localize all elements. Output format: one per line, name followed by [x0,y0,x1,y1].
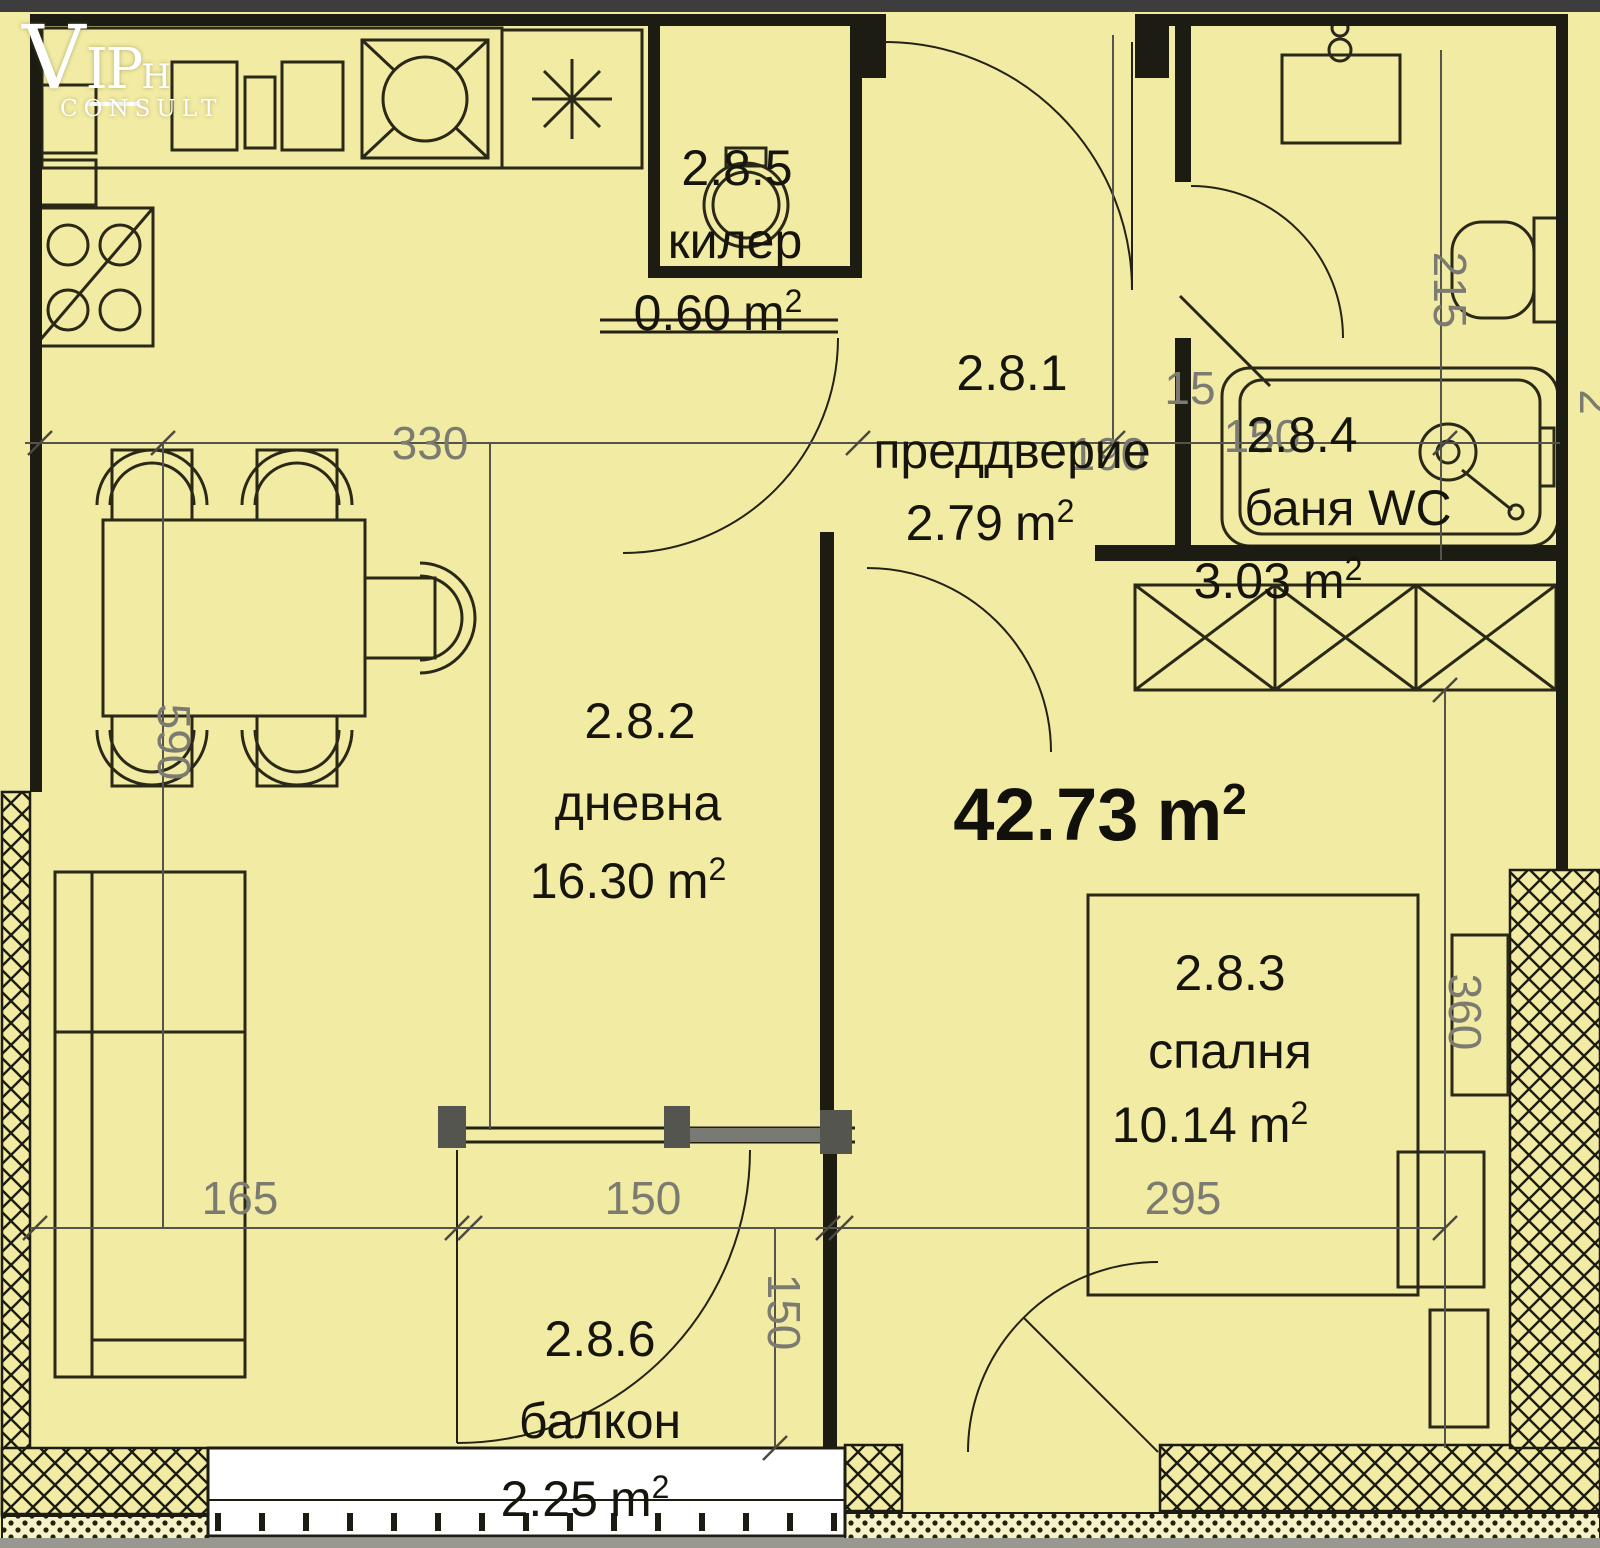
logo-h: H [141,57,171,97]
closet-id: 2.8.5 [681,140,792,196]
closet-wall-left [648,26,660,272]
total-area: 42.73m2 [953,773,1246,856]
dim-295: 295 [1145,1172,1222,1224]
logo-v: V [22,6,86,109]
living-area: 16.30m2 [530,851,727,909]
living-wall [820,532,834,1128]
agency-logo: VIPH CONSULT [22,14,222,122]
door-post [820,1110,852,1154]
bottom-border [0,1538,1600,1548]
bath-area: 3.03m2 [1194,551,1363,609]
closet-name: килер [668,213,803,269]
dim-165: 165 [202,1172,279,1224]
living-name: дневна [555,775,722,831]
hall-area: 2.79m2 [906,493,1075,551]
dim-215: 215 [1424,252,1476,329]
bath-id: 2.8.4 [1246,407,1357,463]
closet-area: 0.60m2 [634,283,803,341]
bedroom-name: спалня [1148,1023,1312,1079]
closet-wall-right [850,26,862,272]
hall-id: 2.8.1 [956,345,1067,401]
dim-150-depth: 150 [758,1274,810,1351]
dim-edge-partial: 2 [1570,389,1600,415]
window-sill [690,1128,820,1142]
bath-name: баня WC [1244,480,1451,536]
bedroom-wall-left [823,1154,837,1449]
balcony-area: 2.25m2 [501,1469,670,1527]
entrance-post-right [1135,14,1169,78]
dim-15: 15 [1164,362,1215,414]
hall-name: преддверие [873,423,1150,479]
dim-330: 330 [392,417,469,469]
balcony-id: 2.8.6 [544,1311,655,1367]
dim-360: 360 [1439,974,1491,1051]
floor-plan: 330 590 165 150 295 150 360 215 150 15 1… [0,0,1600,1548]
left-wall [30,14,42,792]
living-id: 2.8.2 [584,693,695,749]
bath-wall-upper [1175,26,1191,182]
floor-plan-drawing: 330 590 165 150 295 150 360 215 150 15 1… [0,0,1600,1548]
logo-consult: CONSULT [60,96,222,122]
bedroom-area: 10.14m2 [1112,1095,1309,1153]
bedroom-id: 2.8.3 [1174,945,1285,1001]
door-post [438,1106,466,1148]
balcony-name: балкон [519,1393,681,1449]
dim-590: 590 [148,704,200,781]
top-border [0,0,1600,12]
dim-150-door: 150 [605,1172,682,1224]
door-post [664,1106,690,1148]
